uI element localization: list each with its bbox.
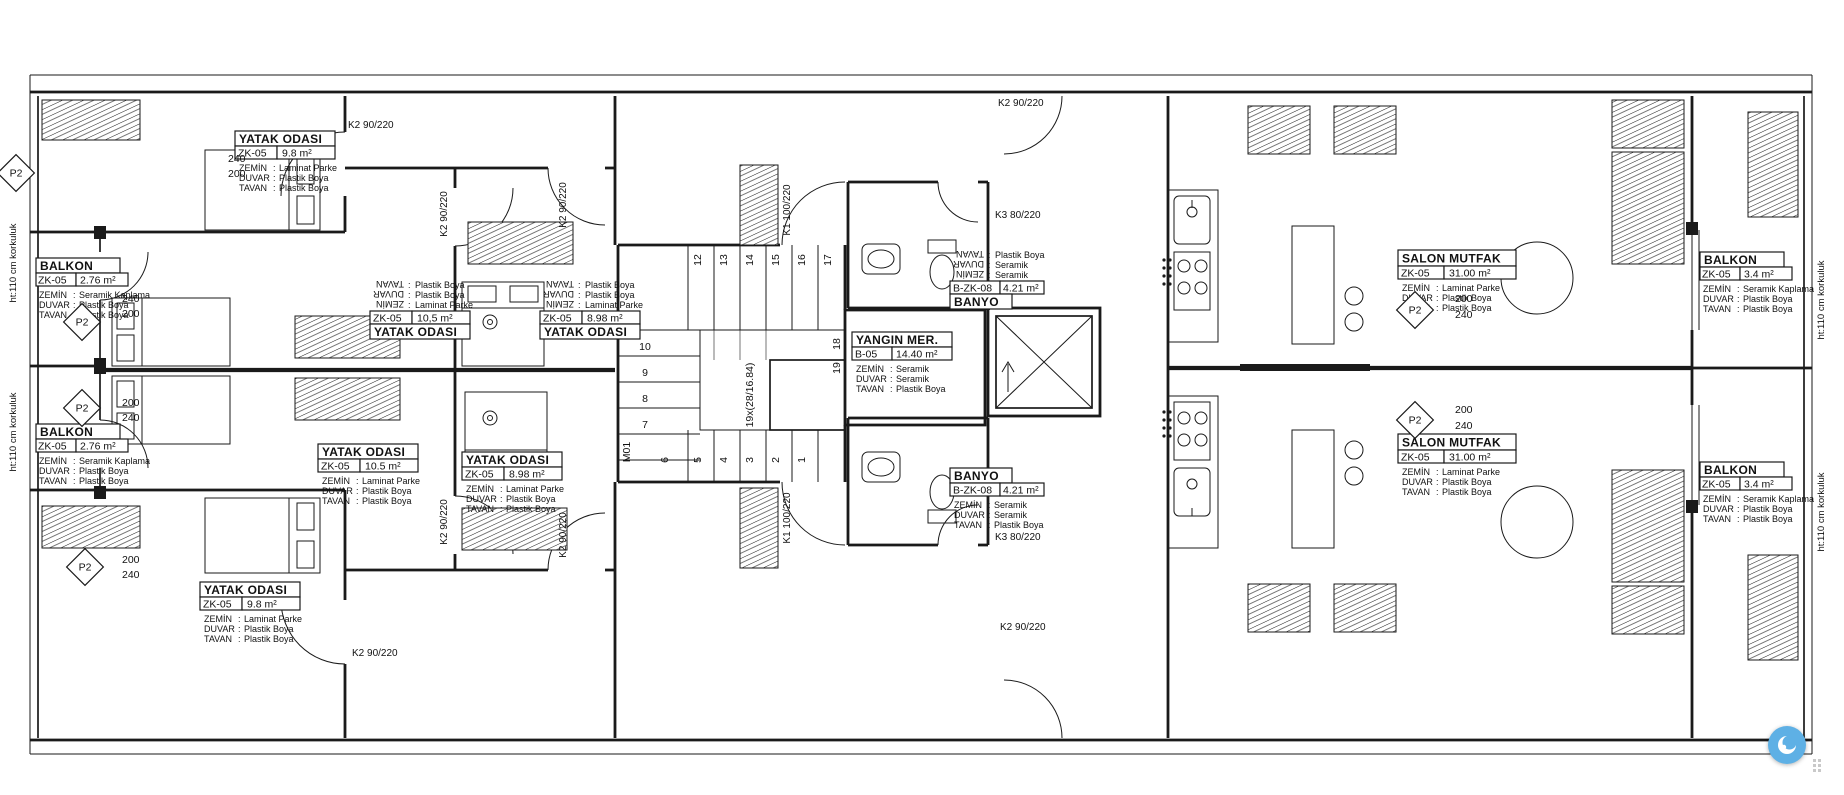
svg-text:TAVAN:Plastik Boya: TAVAN:Plastik Boya: [954, 520, 1044, 530]
svg-text:31.00 m²: 31.00 m²: [1449, 268, 1491, 280]
svg-text:4.21 m²: 4.21 m²: [1003, 283, 1039, 295]
svg-text:P2: P2: [79, 562, 92, 574]
stair-number: 18: [831, 338, 843, 350]
svg-text:ZEMİN:Seramik: ZEMİN:Seramik: [856, 364, 930, 374]
svg-text:9.8 m²: 9.8 m²: [282, 148, 312, 160]
bed-bottom-left: [205, 498, 320, 573]
svg-text:ZK-05: ZK-05: [38, 441, 67, 453]
svg-text:ZK-05: ZK-05: [203, 599, 232, 611]
svg-text:ZEMİN:Laminat Parke: ZEMİN:Laminat Parke: [1402, 283, 1500, 293]
bed-mid-top: [462, 282, 544, 366]
room-label-balkon-right-bottom: BALKON ZK-053.4 m² ZEMİN:Seramik Kaplama…: [1700, 462, 1814, 524]
chat-widget-icon: [1776, 734, 1798, 756]
svg-text:14.40 m²: 14.40 m²: [896, 349, 938, 361]
svg-text:ht:110 cm korkuluk: ht:110 cm korkuluk: [1816, 472, 1827, 551]
drag-grip-icon[interactable]: [1812, 758, 1826, 768]
svg-text:TAVAN:Plastik Boya: TAVAN:Plastik Boya: [856, 384, 946, 394]
room-label-bedroom-mid-top: TAVAN :Plastik Boya DUVAR :Plastik Boya …: [540, 279, 643, 339]
svg-text:ZEMİN:Seramik Kaplama: ZEMİN:Seramik Kaplama: [1703, 284, 1814, 294]
svg-text::Plastik Boya: :Plastik Boya: [578, 290, 635, 300]
svg-text:200: 200: [1455, 293, 1473, 305]
svg-text:BALKON: BALKON: [1704, 463, 1757, 477]
svg-text:K3 80/220: K3 80/220: [995, 210, 1041, 221]
stair-number: 7: [642, 419, 648, 431]
svg-text:240: 240: [1455, 420, 1473, 432]
svg-text:SALON MUTFAK: SALON MUTFAK: [1402, 252, 1501, 266]
bathroom-top-fixtures: [862, 240, 956, 289]
svg-text:ZK-05: ZK-05: [1401, 452, 1430, 464]
svg-text:YATAK ODASI: YATAK ODASI: [544, 325, 627, 339]
svg-text:BANYO: BANYO: [954, 469, 999, 483]
stair-number: 13: [718, 254, 730, 266]
svg-text:K2 90/220: K2 90/220: [558, 512, 569, 558]
bathroom-bottom-fixtures: [862, 452, 956, 523]
svg-text:TAVAN:Plastik Boya: TAVAN:Plastik Boya: [322, 496, 412, 506]
svg-text:ZK-05: ZK-05: [1401, 268, 1430, 280]
svg-text:240: 240: [122, 412, 140, 424]
kitchen-counter-bottom: [1162, 396, 1218, 548]
svg-text:10,5 m²: 10,5 m²: [417, 313, 453, 325]
svg-text:ZEMİN:Seramik Kaplama: ZEMİN:Seramik Kaplama: [1703, 494, 1814, 504]
svg-text::Seramik: :Seramik: [988, 270, 1029, 280]
svg-text:K2 90/220: K2 90/220: [998, 98, 1044, 109]
svg-text:ZK-05: ZK-05: [1702, 479, 1731, 491]
svg-text:DUVAR: DUVAR: [373, 289, 404, 299]
room-label-salon-bottom: SALON MUTFAK ZK-0531.00 m² ZEMİN:Laminat…: [1398, 434, 1516, 497]
svg-text:BANYO: BANYO: [954, 295, 999, 309]
svg-text:TAVAN:Plastik Boya: TAVAN:Plastik Boya: [1402, 487, 1492, 497]
room-label-banyo-bottom: BANYO B-ZK-084.21 m² ZEMİN:Seramik DUVAR…: [950, 468, 1044, 530]
stair-number: 12: [692, 254, 704, 266]
svg-text::Seramik: :Seramik: [988, 260, 1029, 270]
svg-text:240: 240: [122, 569, 140, 581]
svg-text:ZK-05: ZK-05: [373, 313, 402, 325]
svg-text:K2 90/220: K2 90/220: [348, 120, 394, 131]
svg-text:P2: P2: [10, 168, 23, 180]
svg-text:P2: P2: [76, 317, 89, 329]
svg-text:3.4 m²: 3.4 m²: [1744, 269, 1774, 281]
svg-text::Plastik Boya: :Plastik Boya: [988, 250, 1045, 260]
svg-text:TAVAN:Plastik Boya: TAVAN:Plastik Boya: [1703, 304, 1793, 314]
stair-number: 1: [796, 457, 808, 463]
svg-text:ZEMİN:Seramik Kaplama: ZEMİN:Seramik Kaplama: [39, 456, 150, 466]
door-m01-label: M01: [621, 442, 633, 463]
door-labels: K2 90/220 K2 90/220 K2 90/220 K2 90/220 …: [348, 98, 1046, 659]
svg-text:ht:110 cm korkuluk: ht:110 cm korkuluk: [8, 392, 19, 471]
svg-text:200: 200: [122, 397, 140, 409]
svg-text:DUVAR:Plastik Boya: DUVAR:Plastik Boya: [204, 624, 294, 634]
svg-text:ht:110 cm korkuluk: ht:110 cm korkuluk: [1816, 260, 1827, 339]
svg-text:ZEMİN:Laminat Parke: ZEMİN:Laminat Parke: [322, 476, 420, 486]
svg-text:BALKON: BALKON: [40, 425, 93, 439]
svg-text:TAVAN: TAVAN: [546, 279, 574, 289]
svg-text:BALKON: BALKON: [40, 259, 93, 273]
svg-text:P2: P2: [1409, 415, 1422, 427]
svg-text:3.4 m²: 3.4 m²: [1744, 479, 1774, 491]
stair-number: 19: [831, 362, 843, 374]
svg-text:200: 200: [1455, 404, 1473, 416]
svg-text:YATAK ODASI: YATAK ODASI: [204, 583, 287, 597]
svg-text:10.5 m²: 10.5 m²: [365, 461, 401, 473]
floor-plan-page: 12 13 14 15 16 17 10 9 8 7 6 5 4 3 2 1 1…: [0, 0, 1844, 795]
svg-text:200: 200: [122, 308, 140, 320]
svg-text::Laminat Parke: :Laminat Parke: [408, 300, 473, 310]
svg-text:TAVAN: TAVAN: [376, 279, 404, 289]
svg-text:2.76 m²: 2.76 m²: [80, 441, 116, 453]
svg-text:ZEMİN:Laminat Parke: ZEMİN:Laminat Parke: [1402, 467, 1500, 477]
svg-text:DUVAR: DUVAR: [953, 259, 984, 269]
svg-text:TAVAN:Plastik Boya: TAVAN:Plastik Boya: [39, 476, 129, 486]
svg-text:ht:110 cm korkuluk: ht:110 cm korkuluk: [8, 223, 19, 302]
svg-text:DUVAR:Plastik Boya: DUVAR:Plastik Boya: [1703, 294, 1793, 304]
svg-text::Laminat Parke: :Laminat Parke: [578, 300, 643, 310]
svg-text:TAVAN:Plastik Boya: TAVAN:Plastik Boya: [466, 504, 556, 514]
svg-text:ZEMİN: ZEMİN: [376, 299, 404, 309]
svg-text:DUVAR: DUVAR: [543, 289, 574, 299]
stair-number: 6: [659, 457, 671, 463]
svg-text:ZEMİN: ZEMİN: [546, 299, 574, 309]
stair-number: 9: [642, 367, 648, 379]
stair-number: 10: [639, 341, 651, 353]
svg-text:K3 80/220: K3 80/220: [995, 532, 1041, 543]
svg-text:K2 90/220: K2 90/220: [439, 499, 450, 545]
svg-text:ZEMİN:Laminat Parke: ZEMİN:Laminat Parke: [204, 614, 302, 624]
exit-arrow-icon: [1002, 362, 1014, 392]
stair-number: 8: [642, 393, 648, 405]
salon-top-furniture: [1240, 100, 1684, 371]
stair-number: 16: [796, 254, 808, 266]
svg-text:K2 90/220: K2 90/220: [352, 648, 398, 659]
svg-text:K2 90/220: K2 90/220: [1000, 622, 1046, 633]
svg-text:ZK-05: ZK-05: [465, 469, 494, 481]
svg-text:YANGIN MER.: YANGIN MER.: [856, 333, 938, 347]
svg-text:240: 240: [122, 293, 140, 305]
svg-text:K2 90/220: K2 90/220: [558, 182, 569, 228]
svg-text:ZK-05: ZK-05: [321, 461, 350, 473]
kitchen-counter-top: [1162, 190, 1218, 342]
svg-text:B-05: B-05: [855, 349, 877, 361]
svg-text:9.8 m²: 9.8 m²: [247, 599, 277, 611]
svg-text:B-ZK-08: B-ZK-08: [953, 283, 992, 295]
svg-text:ZK-05: ZK-05: [38, 275, 67, 287]
svg-text:DUVAR:Plastik Boya: DUVAR:Plastik Boya: [1703, 504, 1793, 514]
svg-text:2.76 m²: 2.76 m²: [80, 275, 116, 287]
svg-text::Plastik Boya: :Plastik Boya: [408, 290, 465, 300]
svg-text:ZEMİN:Laminat Parke: ZEMİN:Laminat Parke: [466, 484, 564, 494]
svg-text:P2: P2: [76, 403, 89, 415]
room-label-bedroom-top-left: YATAK ODASI ZK-059.8 m² ZEMİN:Laminat Pa…: [235, 131, 337, 193]
svg-text:B-ZK-08: B-ZK-08: [953, 485, 992, 497]
svg-text:TAVAN: TAVAN: [956, 249, 984, 259]
svg-text:200: 200: [228, 168, 246, 180]
svg-text:DUVAR:Plastik Boya: DUVAR:Plastik Boya: [1402, 477, 1492, 487]
svg-text:YATAK ODASI: YATAK ODASI: [466, 453, 549, 467]
svg-text::Plastik Boya: :Plastik Boya: [578, 280, 635, 290]
stair-number: 5: [692, 457, 704, 463]
svg-text:TAVAN:Plastik Boya: TAVAN:Plastik Boya: [1703, 514, 1793, 524]
room-label-banyo-top: TAVAN :Plastik Boya DUVAR :Seramik ZEMİN…: [950, 249, 1045, 309]
stair-number: 17: [822, 254, 834, 266]
svg-text:240: 240: [228, 153, 246, 165]
svg-text:YATAK ODASI: YATAK ODASI: [322, 445, 405, 459]
main-staircase: 12 13 14 15 16 17 10 9 8 7 6 5 4 3 2 1 1…: [618, 245, 845, 482]
elevator-shaft: [988, 308, 1100, 416]
svg-text:DUVAR:Plastik Boya: DUVAR:Plastik Boya: [39, 466, 129, 476]
svg-text:YATAK ODASI: YATAK ODASI: [374, 325, 457, 339]
svg-text:ZK-05: ZK-05: [543, 313, 572, 325]
svg-text:K2 90/220: K2 90/220: [439, 191, 450, 237]
svg-text:TAVAN:Plastik Boya: TAVAN:Plastik Boya: [204, 634, 294, 644]
svg-text:8.98 m²: 8.98 m²: [587, 313, 623, 325]
svg-text:DUVAR:Seramik: DUVAR:Seramik: [954, 510, 1028, 520]
svg-text:200: 200: [122, 554, 140, 566]
svg-text:ZEMİN: ZEMİN: [956, 269, 984, 279]
stair-number: 2: [770, 457, 782, 463]
room-label-balkon-right-top: BALKON ZK-053.4 m² ZEMİN:Seramik Kaplama…: [1700, 252, 1814, 314]
room-label-bedroom-mid-left-top: TAVAN :Plastik Boya DUVAR :Plastik Boya …: [370, 279, 473, 339]
svg-text:31.00 m²: 31.00 m²: [1449, 452, 1491, 464]
svg-text:P2: P2: [1409, 305, 1422, 317]
svg-text:DUVAR:Plastik Boya: DUVAR:Plastik Boya: [322, 486, 412, 496]
svg-text:K1 100/220: K1 100/220: [782, 184, 793, 236]
room-label-bedroom-mid-left-bottom: YATAK ODASI ZK-0510.5 m² ZEMİN:Laminat P…: [318, 444, 420, 506]
chat-widget-button[interactable]: [1768, 726, 1806, 764]
room-label-bedroom-mid-bottom: YATAK ODASI ZK-058.98 m² ZEMİN:Laminat P…: [462, 452, 564, 514]
svg-text:DUVAR:Plastik Boya: DUVAR:Plastik Boya: [239, 173, 329, 183]
svg-text:ZEMİN:Laminat Parke: ZEMİN:Laminat Parke: [239, 163, 337, 173]
svg-text:4.21 m²: 4.21 m²: [1003, 485, 1039, 497]
svg-text:TAVAN:Plastik Boya: TAVAN:Plastik Boya: [239, 183, 329, 193]
svg-text:K1 100/220: K1 100/220: [782, 492, 793, 544]
svg-text:8.98 m²: 8.98 m²: [509, 469, 545, 481]
room-label-bedroom-bottom-left: YATAK ODASI ZK-059.8 m² ZEMİN:Laminat Pa…: [200, 582, 302, 644]
stair-number: 14: [744, 254, 756, 266]
svg-text:SALON MUTFAK: SALON MUTFAK: [1402, 436, 1501, 450]
svg-text:DUVAR:Plastik Boya: DUVAR:Plastik Boya: [466, 494, 556, 504]
stair-number: 15: [770, 254, 782, 266]
floor-plan-drawing: 12 13 14 15 16 17 10 9 8 7 6 5 4 3 2 1 1…: [0, 0, 1844, 795]
balcony-sofas: [1748, 112, 1798, 660]
svg-text:ZEMİN:Seramik: ZEMİN:Seramik: [954, 500, 1028, 510]
svg-text:DUVAR:Seramik: DUVAR:Seramik: [856, 374, 930, 384]
svg-text:240: 240: [1455, 309, 1473, 321]
svg-text:BALKON: BALKON: [1704, 253, 1757, 267]
stair-number: 3: [744, 457, 756, 463]
stair-number: 4: [718, 457, 730, 463]
svg-text:YATAK ODASI: YATAK ODASI: [239, 132, 322, 146]
bed-mid-left-bottom: [112, 376, 230, 444]
svg-text::Plastik Boya: :Plastik Boya: [408, 280, 465, 290]
room-label-yangin-merdiveni: YANGIN MER. B-0514.40 m² ZEMİN:Seramik D…: [852, 332, 952, 394]
stair-count-note: 19x(28/16.84): [744, 363, 756, 428]
svg-text:ZK-05: ZK-05: [1702, 269, 1731, 281]
